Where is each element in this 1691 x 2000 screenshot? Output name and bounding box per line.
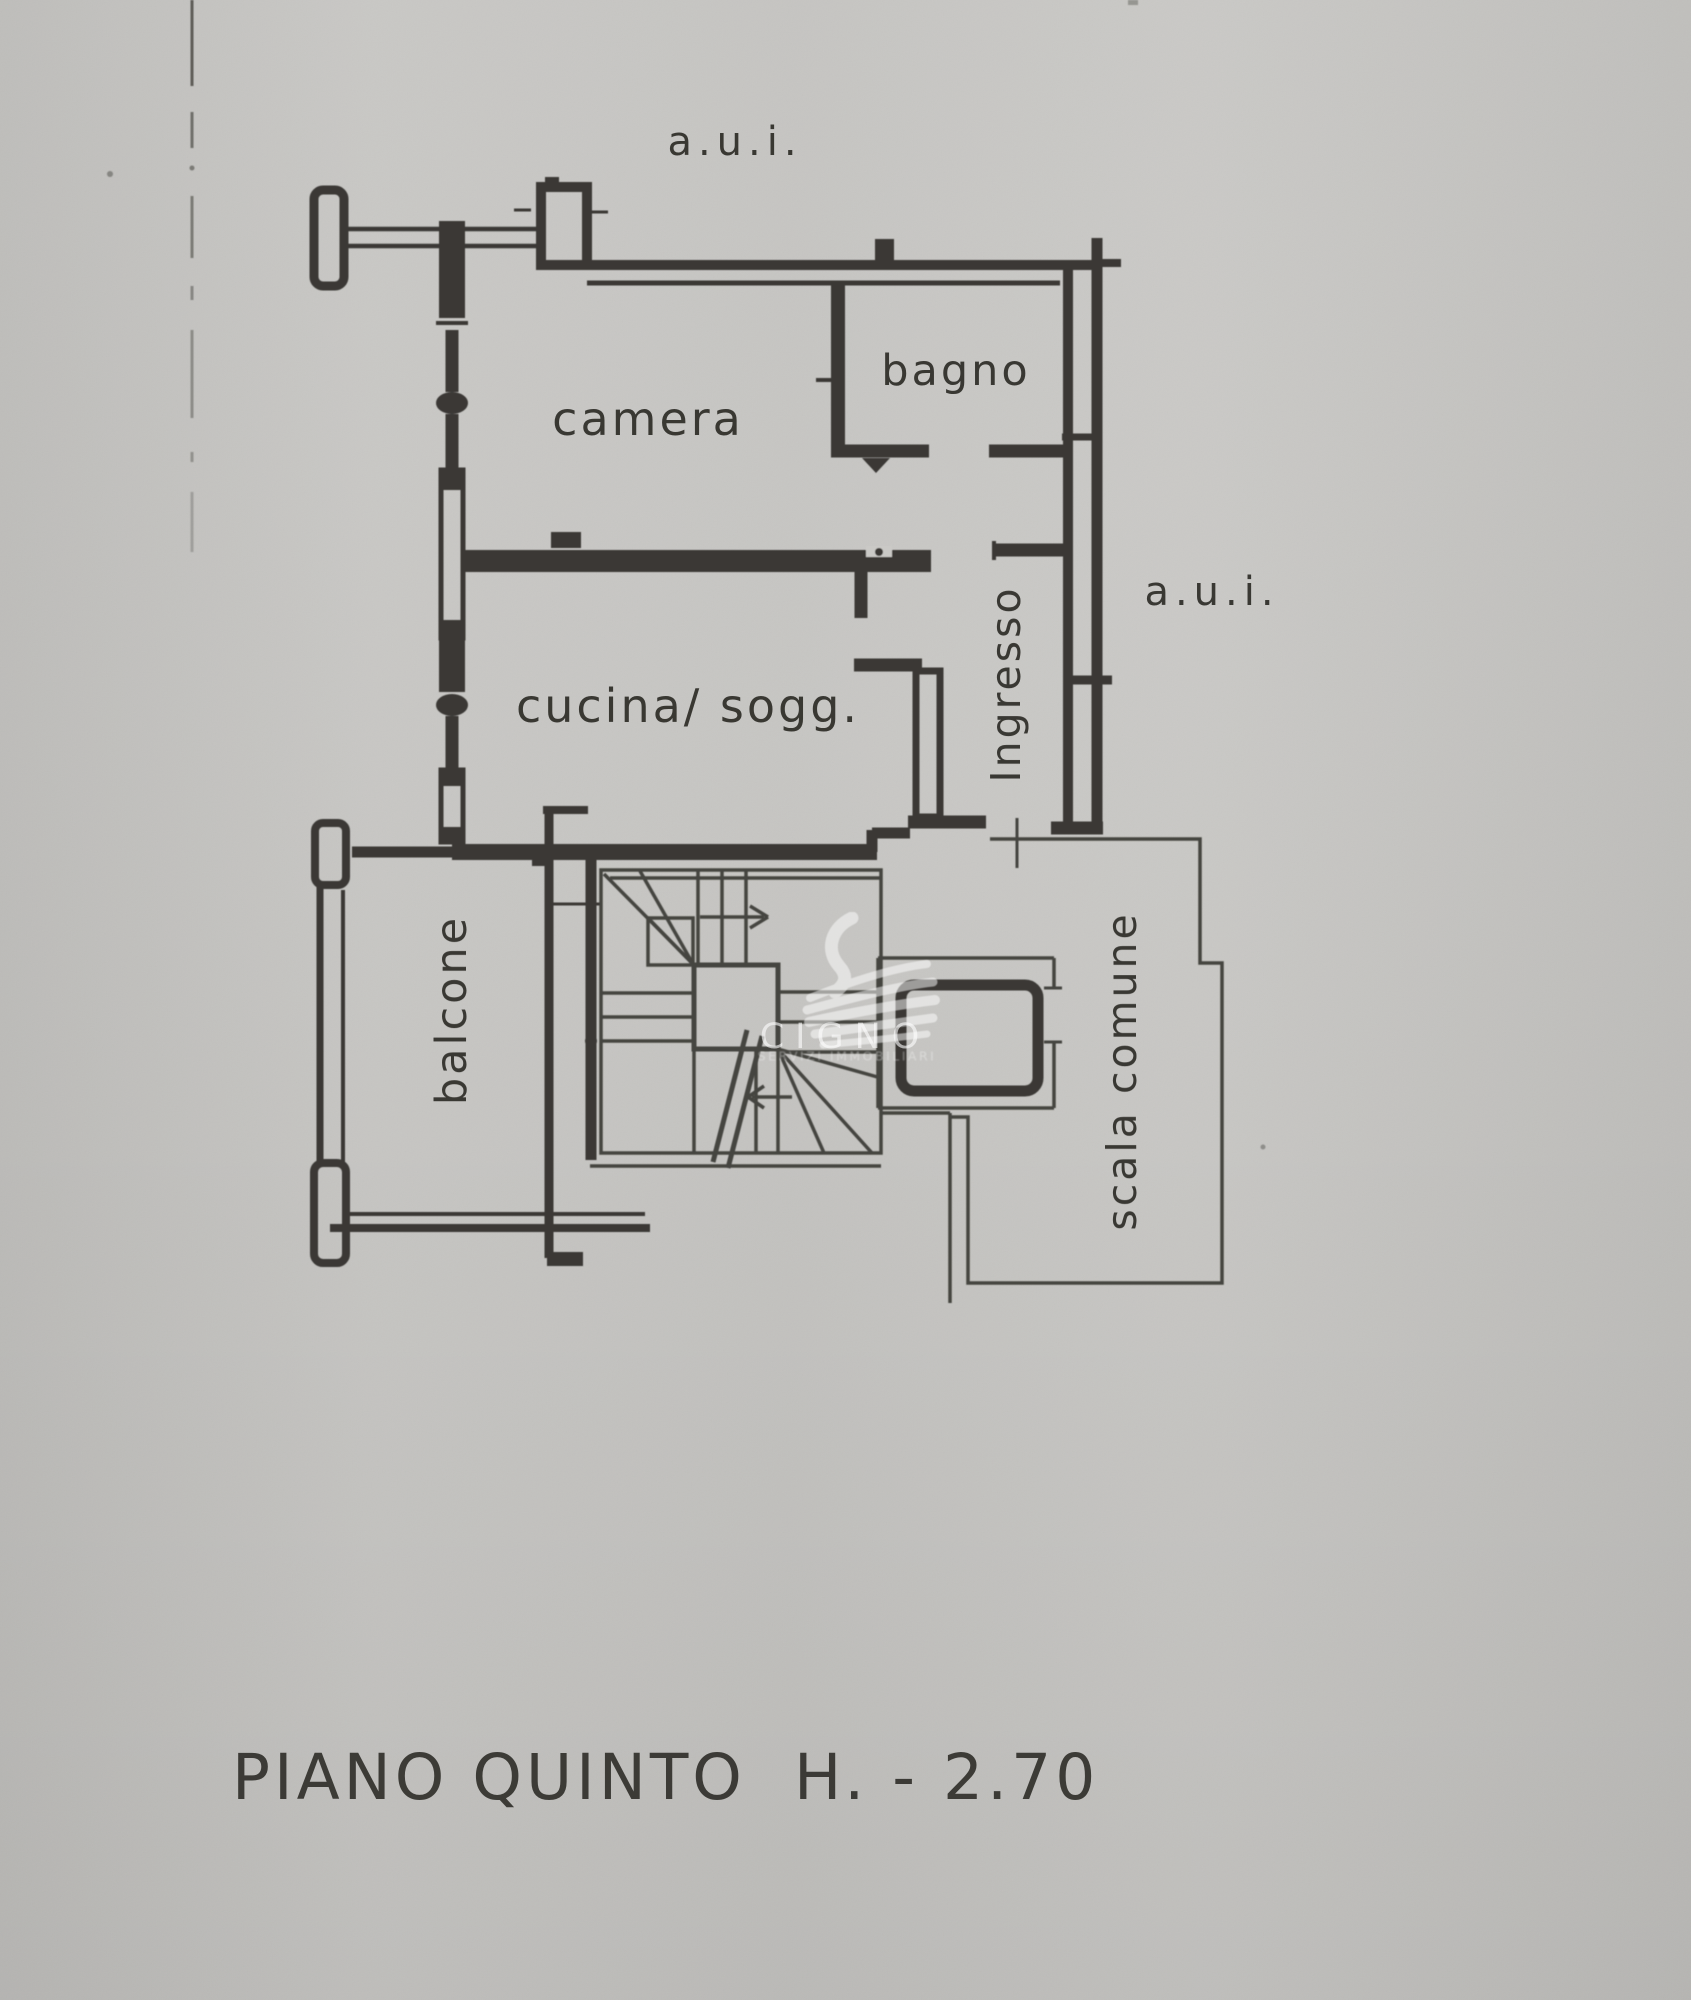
label-aui-top: a.u.i. — [667, 119, 802, 165]
scanned-floor-plan-page: a.u.i. camera bagno a.u.i. cucina/ sogg.… — [0, 0, 1691, 2000]
label-balcone: balcone — [427, 915, 477, 1105]
label-cucina-sogg: cucina/ sogg. — [516, 679, 860, 733]
label-scala-comune: scala comune — [1098, 911, 1146, 1230]
label-aui-right: a.u.i. — [1144, 569, 1279, 615]
floor-plan-drawing — [0, 0, 1691, 2000]
paper-texture — [0, 0, 1691, 2000]
floor-title: PIANO QUINTO H. - 2.70 — [232, 1741, 1099, 1814]
label-camera: camera — [552, 392, 744, 446]
label-ingresso: Ingresso — [982, 585, 1030, 782]
label-bagno: bagno — [881, 346, 1031, 396]
